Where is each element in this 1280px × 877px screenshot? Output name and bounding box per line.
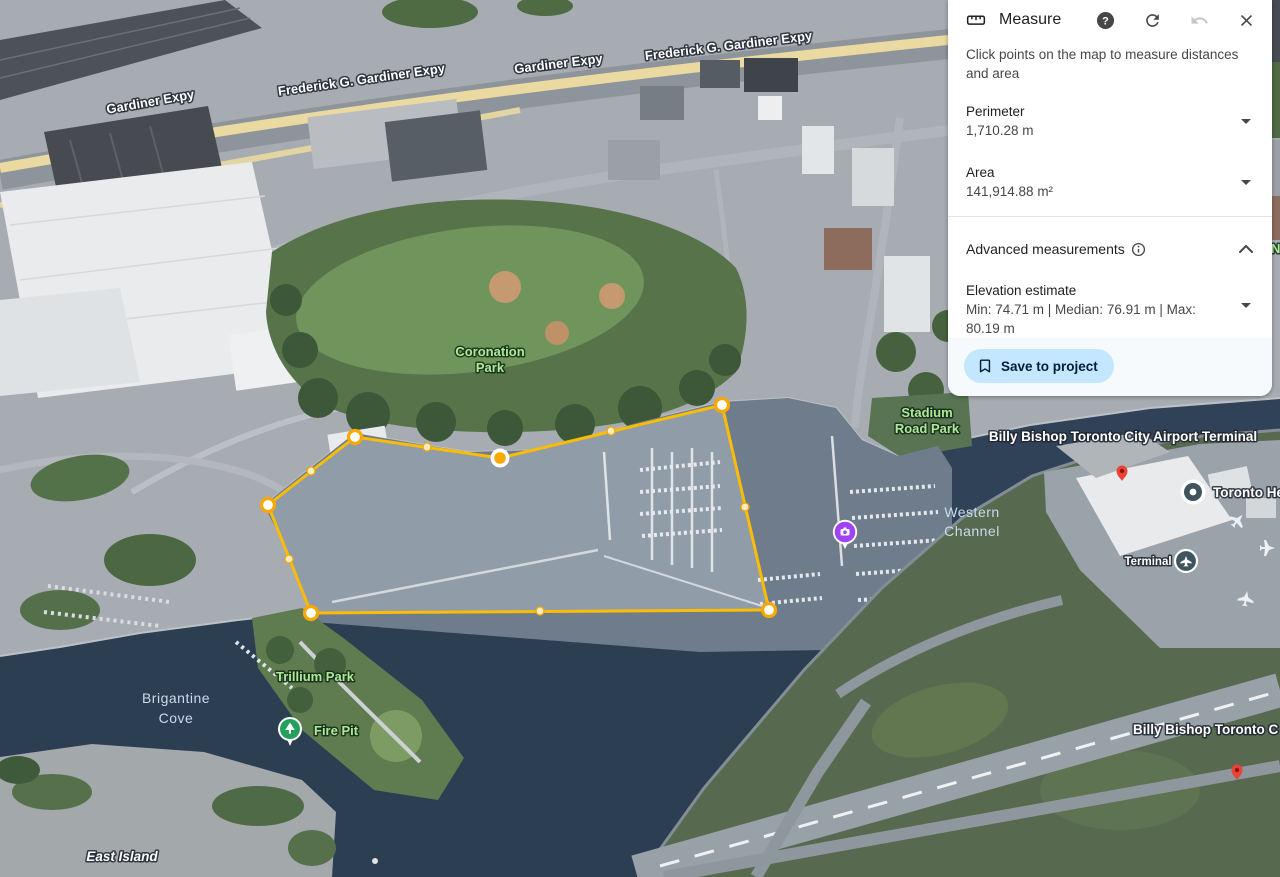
area-label: Area <box>966 163 1236 182</box>
perimeter-label: Perimeter <box>966 102 1236 121</box>
measure-vertex-handle[interactable] <box>763 604 776 617</box>
measure-vertex-handle[interactable] <box>349 431 362 444</box>
area-expand-button[interactable] <box>1236 172 1256 192</box>
ruler-icon <box>966 10 986 30</box>
help-icon: ? <box>1096 11 1115 30</box>
elevation-value: Min: 74.71 m | Median: 76.91 m | Max: 80… <box>966 300 1216 338</box>
measure-midpoint-handle[interactable] <box>285 555 293 563</box>
undo-icon <box>1190 11 1209 30</box>
screen: { "panel": { "title": "Measure", "instru… <box>0 0 1280 877</box>
elevation-expand-button[interactable] <box>1236 295 1256 315</box>
park-label-coronation-line1: Coronation <box>455 344 524 359</box>
water-label-western-line2: Channel <box>944 523 1000 539</box>
poi-label-fire-pit: Fire Pit <box>314 723 359 738</box>
save-to-project-label: Save to project <box>1001 359 1098 374</box>
perimeter-row: Perimeter 1,710.28 m <box>948 102 1272 140</box>
area-value: 141,914.88 m² <box>966 182 1236 201</box>
caret-down-icon <box>1241 303 1251 308</box>
measure-midpoint-handle[interactable] <box>607 427 615 435</box>
restart-button[interactable] <box>1142 10 1162 30</box>
caret-down-icon <box>1241 180 1251 185</box>
area-row: Area 141,914.88 m² <box>948 163 1272 201</box>
poi-label-billy-bishop-terminal: Billy Bishop Toronto City Airport Termin… <box>989 429 1257 444</box>
heliport-icon[interactable] <box>1181 480 1206 505</box>
park-label-stadium-line2: Road Park <box>895 421 960 436</box>
poi-label-toronto-he: Toronto He <box>1213 485 1280 500</box>
measure-vertex-selected-center <box>494 452 506 464</box>
poi-label-terminal: Terminal <box>1124 556 1171 568</box>
panel-title: Measure <box>999 11 1061 29</box>
park-label-coronation-line2: Park <box>476 360 505 375</box>
panel-footer: Save to project <box>948 338 1272 396</box>
poi-label-billy-bishop-c: Billy Bishop Toronto C <box>1133 722 1278 737</box>
measure-midpoint-handle[interactable] <box>536 607 544 615</box>
caret-down-icon <box>1241 119 1251 124</box>
water-label-brigantine-line2: Cove <box>159 710 194 726</box>
divider <box>948 216 1272 217</box>
measure-midpoint-handle[interactable] <box>307 467 315 475</box>
advanced-collapse-button[interactable] <box>1236 239 1256 259</box>
park-label-fragment: N <box>1271 241 1280 256</box>
park-label-stadium-line1: Stadium <box>901 405 952 420</box>
chevron-up-icon <box>1239 245 1253 253</box>
water-label-brigantine-line1: Brigantine <box>142 690 210 706</box>
advanced-measurements-label: Advanced measurements <box>966 241 1125 257</box>
elevation-row: Elevation estimate Min: 74.71 m | Median… <box>948 281 1272 338</box>
perimeter-expand-button[interactable] <box>1236 111 1256 131</box>
airport-icon[interactable] <box>1175 550 1197 572</box>
measure-panel: Measure ? <box>948 0 1272 396</box>
measure-vertex-handle[interactable] <box>262 499 275 512</box>
undo-button[interactable] <box>1189 10 1209 30</box>
header-actions: ? <box>1095 10 1256 30</box>
measure-vertex-handle[interactable] <box>716 399 729 412</box>
boat <box>372 858 378 864</box>
measure-vertex-handle[interactable] <box>305 607 318 620</box>
measure-midpoint-handle[interactable] <box>423 443 431 451</box>
svg-text:?: ? <box>1102 15 1109 27</box>
island-label-east-island: East Island <box>86 849 158 864</box>
advanced-measurements-row: Advanced measurements <box>948 239 1272 259</box>
info-icon[interactable] <box>1131 242 1146 257</box>
close-icon <box>1237 11 1256 30</box>
save-to-project-button[interactable]: Save to project <box>964 349 1114 383</box>
panel-header: Measure ? <box>948 0 1272 33</box>
elevation-label: Elevation estimate <box>966 281 1236 300</box>
perimeter-value: 1,710.28 m <box>966 121 1236 140</box>
panel-instruction: Click points on the map to measure dista… <box>966 45 1254 83</box>
help-button[interactable]: ? <box>1095 10 1115 30</box>
close-button[interactable] <box>1236 10 1256 30</box>
refresh-icon <box>1143 11 1162 30</box>
bookmark-icon <box>977 358 993 374</box>
park-label-trillium: Trillium Park <box>276 669 355 684</box>
water-label-western-line1: Western <box>944 504 999 520</box>
measure-midpoint-handle[interactable] <box>741 503 749 511</box>
